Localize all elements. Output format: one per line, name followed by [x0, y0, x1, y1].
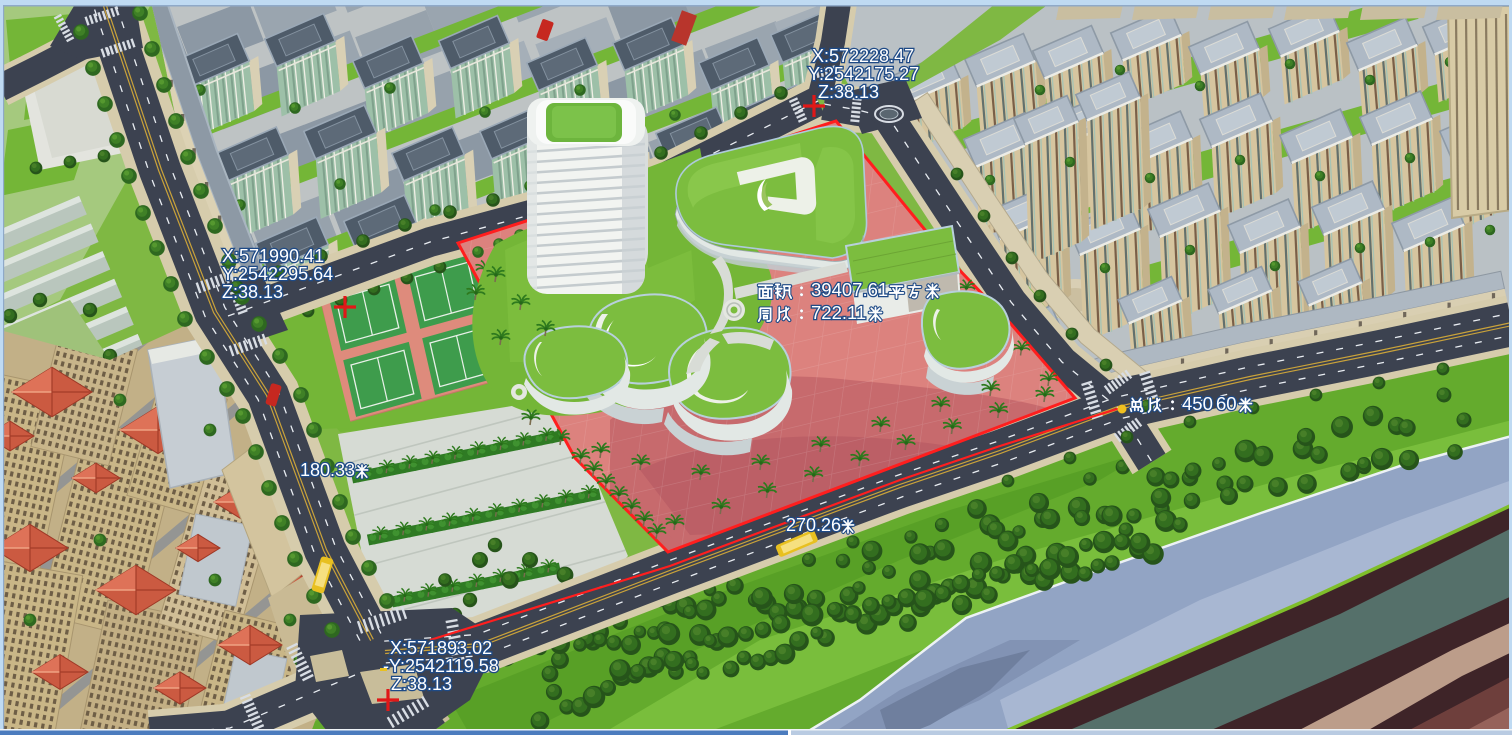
svg-text:270.26: 270.26 — [786, 515, 841, 535]
svg-text:180.33: 180.33 — [300, 460, 355, 480]
svg-text:Z:38.13: Z:38.13 — [818, 82, 879, 102]
svg-text:X:571893.02: X:571893.02 — [390, 638, 492, 658]
svg-text:X:571990.41: X:571990.41 — [222, 246, 324, 266]
svg-text:39407.61: 39407.61 — [811, 279, 888, 300]
svg-text:60: 60 — [1216, 393, 1237, 414]
svg-text:-Y:2542119.58: -Y:2542119.58 — [383, 656, 499, 676]
svg-text:Y:2542175.27: Y:2542175.27 — [808, 64, 919, 84]
svg-text:Z:38.13: Z:38.13 — [391, 674, 452, 694]
svg-text:722.11: 722.11 — [811, 302, 866, 323]
svg-text:450: 450 — [1182, 393, 1213, 414]
svg-text:Y:2542295.64: Y:2542295.64 — [222, 264, 333, 284]
svg-text:Z:38.13: Z:38.13 — [222, 282, 283, 302]
svg-text:X:572228.47: X:572228.47 — [812, 46, 914, 66]
